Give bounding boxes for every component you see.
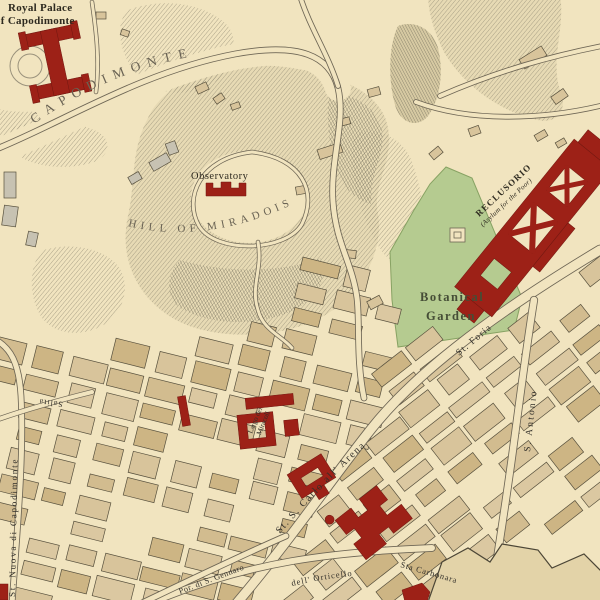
garden-pavilion <box>450 228 465 242</box>
label-royal-palace-line2: of Capodimonte <box>0 15 75 27</box>
observatory-building <box>206 182 246 196</box>
building <box>96 12 106 19</box>
label-garden: Garden <box>426 309 476 323</box>
label-observatory: Observatory <box>191 171 249 182</box>
building <box>2 205 19 227</box>
label-botanical: Botanical <box>420 290 484 304</box>
building <box>4 172 16 198</box>
label-royal-palace-line1: Royal Palace <box>8 2 72 14</box>
map-canvas: Royal Palace of Capodimonte CAPODIMONTE … <box>0 0 600 600</box>
